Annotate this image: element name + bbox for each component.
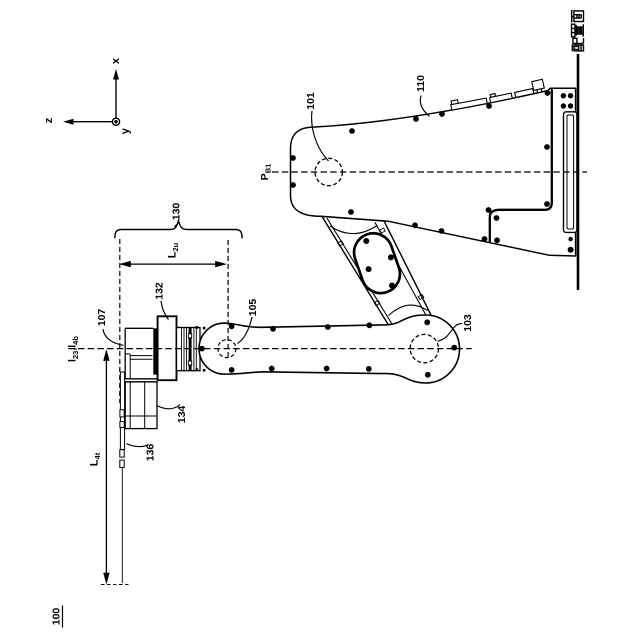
svg-text:x: x [110,57,122,64]
svg-text:134: 134 [176,406,188,424]
svg-text:105: 105 [247,299,259,317]
svg-text:136: 136 [145,444,157,462]
svg-text:107: 107 [96,309,108,327]
svg-text:132: 132 [154,282,166,300]
svg-text:103: 103 [462,314,474,332]
svg-text:110: 110 [415,75,427,92]
svg-text:130: 130 [171,203,183,221]
svg-text:y: y [119,127,131,134]
svg-text:100: 100 [51,608,63,626]
svg-text:z: z [43,117,55,123]
svg-text:101: 101 [305,92,317,110]
